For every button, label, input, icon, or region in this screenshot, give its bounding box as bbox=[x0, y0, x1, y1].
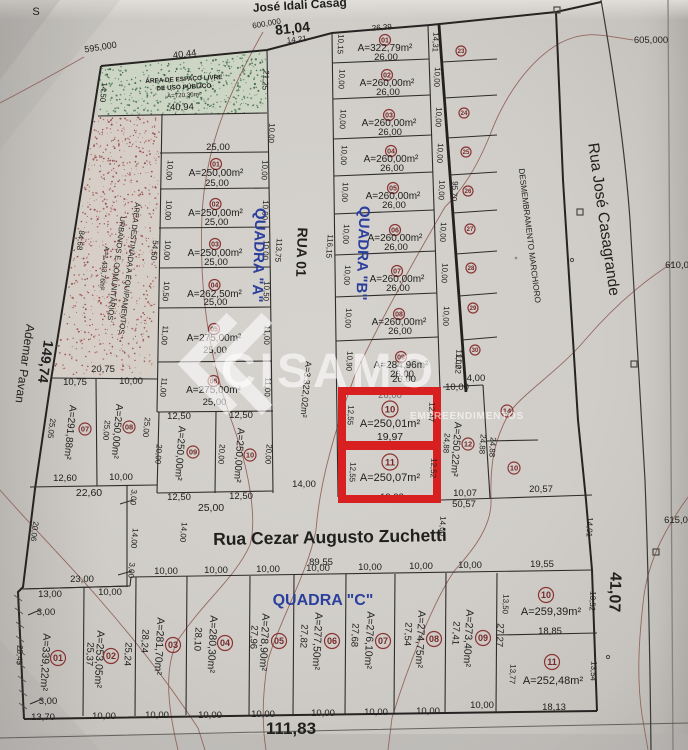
svg-text:27,82: 27,82 bbox=[297, 624, 309, 648]
svg-text:25,00: 25,00 bbox=[206, 142, 230, 153]
svg-text:14,31: 14,31 bbox=[430, 32, 440, 53]
svg-text:10,00: 10,00 bbox=[204, 565, 228, 576]
svg-text:10,00: 10,00 bbox=[92, 711, 116, 722]
svg-text:10,00: 10,00 bbox=[198, 710, 222, 721]
svg-text:12,50: 12,50 bbox=[229, 410, 253, 421]
svg-text:95,70: 95,70 bbox=[449, 181, 459, 202]
svg-text:10,00: 10,00 bbox=[470, 700, 494, 711]
svg-text:26: 26 bbox=[465, 189, 472, 195]
svg-text:CISAMO: CISAMO bbox=[221, 345, 437, 398]
svg-text:3,00: 3,00 bbox=[126, 562, 136, 579]
svg-text:10,00: 10,00 bbox=[342, 265, 352, 286]
svg-text:A=250,07m²: A=250,07m² bbox=[360, 472, 421, 484]
svg-text:41,07: 41,07 bbox=[605, 572, 623, 613]
svg-text:12,52: 12,52 bbox=[428, 458, 438, 479]
svg-text:12,60: 12,60 bbox=[53, 473, 77, 484]
svg-text:4,00: 4,00 bbox=[467, 373, 486, 384]
svg-text:14,00: 14,00 bbox=[437, 516, 447, 537]
svg-text:S: S bbox=[32, 6, 39, 18]
svg-text:10,00: 10,00 bbox=[439, 263, 449, 284]
svg-text:QUADRA "B": QUADRA "B" bbox=[352, 206, 372, 301]
svg-text:10,00: 10,00 bbox=[162, 240, 173, 261]
svg-text:10,15: 10,15 bbox=[335, 34, 345, 55]
svg-text:10,00: 10,00 bbox=[119, 376, 143, 387]
svg-text:11,00: 11,00 bbox=[159, 325, 170, 346]
svg-text:10: 10 bbox=[541, 590, 551, 600]
svg-text:24,88: 24,88 bbox=[487, 437, 497, 458]
svg-text:06: 06 bbox=[327, 636, 337, 646]
svg-text:01: 01 bbox=[53, 653, 63, 663]
svg-text:12,55: 12,55 bbox=[347, 462, 357, 483]
svg-text:10,00: 10,00 bbox=[163, 200, 174, 221]
svg-text:10,00: 10,00 bbox=[259, 160, 269, 181]
svg-text:116,15: 116,15 bbox=[324, 234, 335, 259]
svg-text:20,00: 20,00 bbox=[153, 444, 163, 465]
svg-text:24: 24 bbox=[461, 111, 468, 117]
svg-text:11,02: 11,02 bbox=[453, 354, 463, 375]
svg-text:10,00: 10,00 bbox=[340, 182, 350, 203]
svg-text:10: 10 bbox=[246, 451, 254, 460]
svg-text:10,07: 10,07 bbox=[453, 488, 477, 499]
svg-text:19,55: 19,55 bbox=[530, 559, 554, 570]
svg-text:28,10: 28,10 bbox=[191, 627, 203, 651]
svg-text:29: 29 bbox=[470, 306, 477, 312]
svg-text:10: 10 bbox=[385, 404, 396, 415]
svg-text:10,00: 10,00 bbox=[438, 222, 448, 243]
svg-text:10,00: 10,00 bbox=[432, 67, 442, 88]
svg-text:EMPREENDIMENTOS: EMPREENDIMENTOS bbox=[410, 411, 524, 422]
svg-text:25,00: 25,00 bbox=[205, 217, 229, 228]
svg-text:27: 27 bbox=[467, 227, 474, 233]
svg-text:10,00: 10,00 bbox=[364, 707, 388, 718]
svg-text:09: 09 bbox=[478, 633, 488, 643]
svg-text:20,00: 20,00 bbox=[216, 444, 226, 465]
svg-text:10,00: 10,00 bbox=[145, 710, 169, 721]
svg-text:10,75: 10,75 bbox=[63, 377, 87, 388]
svg-text:10,00: 10,00 bbox=[338, 109, 348, 130]
svg-text:10,00: 10,00 bbox=[436, 180, 446, 201]
svg-text:23: 23 bbox=[458, 49, 465, 55]
svg-text:3,00: 3,00 bbox=[39, 696, 58, 707]
svg-text:26,00: 26,00 bbox=[376, 87, 400, 98]
svg-text:05: 05 bbox=[274, 636, 284, 646]
svg-text:02: 02 bbox=[106, 651, 116, 661]
svg-text:10,00: 10,00 bbox=[154, 566, 178, 577]
svg-text:14,00: 14,00 bbox=[129, 528, 140, 549]
svg-text:25,24: 25,24 bbox=[121, 642, 133, 666]
svg-text:Rua Cezar Augusto Zuchetti: Rua Cezar Augusto Zuchetti bbox=[213, 525, 447, 549]
svg-text:10,00: 10,00 bbox=[339, 145, 349, 166]
svg-text:04: 04 bbox=[220, 638, 230, 648]
svg-text:13,50: 13,50 bbox=[500, 594, 510, 615]
svg-text:10,00: 10,00 bbox=[441, 306, 451, 327]
svg-text:10,00: 10,00 bbox=[358, 562, 382, 573]
svg-text:10,50: 10,50 bbox=[160, 281, 171, 302]
svg-text:24,88: 24,88 bbox=[441, 433, 451, 454]
svg-text:27,41: 27,41 bbox=[449, 621, 461, 645]
svg-text:11,00: 11,00 bbox=[158, 377, 169, 398]
svg-text:14,01: 14,01 bbox=[584, 517, 594, 538]
svg-text:27,54: 27,54 bbox=[401, 622, 413, 646]
svg-text:13,00: 13,00 bbox=[38, 589, 62, 600]
svg-text:14,00: 14,00 bbox=[292, 479, 316, 490]
svg-text:10,00: 10,00 bbox=[266, 123, 276, 144]
svg-text:25,00: 25,00 bbox=[101, 420, 112, 441]
svg-text:10,00: 10,00 bbox=[445, 382, 469, 393]
svg-text:A=252,48m²: A=252,48m² bbox=[523, 675, 584, 687]
svg-text:615,0: 615,0 bbox=[664, 515, 688, 526]
svg-text:10,00: 10,00 bbox=[416, 706, 440, 717]
svg-text:10,00: 10,00 bbox=[109, 472, 133, 483]
svg-text:25,00: 25,00 bbox=[198, 502, 224, 514]
svg-text:40,94: 40,94 bbox=[170, 102, 194, 114]
svg-text:27,96: 27,96 bbox=[247, 625, 259, 649]
svg-text:18,85: 18,85 bbox=[538, 626, 562, 637]
svg-text:605,000: 605,000 bbox=[634, 35, 668, 46]
svg-text:28: 28 bbox=[468, 266, 475, 272]
svg-text:25,00: 25,00 bbox=[204, 297, 228, 308]
svg-text:10,00: 10,00 bbox=[343, 308, 353, 329]
svg-text:50,57: 50,57 bbox=[452, 499, 476, 510]
svg-text:10,00: 10,00 bbox=[256, 564, 280, 575]
svg-text:QUADRA "A": QUADRA "A" bbox=[248, 208, 268, 303]
svg-text:3,00: 3,00 bbox=[128, 489, 138, 506]
svg-text:10,00: 10,00 bbox=[409, 561, 433, 572]
svg-text:3,00: 3,00 bbox=[37, 607, 56, 618]
svg-text:10,00: 10,00 bbox=[98, 587, 122, 598]
svg-text:113,75: 113,75 bbox=[273, 238, 284, 263]
svg-text:26,00: 26,00 bbox=[374, 52, 398, 63]
svg-text:10,00: 10,00 bbox=[311, 708, 335, 719]
svg-text:111,83: 111,83 bbox=[266, 719, 316, 738]
svg-text:10,00: 10,00 bbox=[433, 107, 443, 128]
svg-text:26,00: 26,00 bbox=[386, 283, 410, 294]
svg-text:08: 08 bbox=[125, 423, 133, 432]
svg-text:23,00: 23,00 bbox=[70, 574, 94, 585]
svg-text:27,68: 27,68 bbox=[348, 623, 360, 647]
svg-text:10,00: 10,00 bbox=[341, 224, 351, 245]
svg-text:20,57: 20,57 bbox=[529, 484, 553, 495]
svg-text:24,88: 24,88 bbox=[477, 434, 487, 455]
svg-text:25: 25 bbox=[463, 150, 470, 156]
svg-text:12,50: 12,50 bbox=[167, 492, 191, 503]
svg-text:20,00: 20,00 bbox=[263, 444, 273, 465]
svg-text:10,00: 10,00 bbox=[435, 143, 445, 164]
svg-text:610,0: 610,0 bbox=[665, 260, 688, 271]
svg-text:07: 07 bbox=[81, 425, 89, 434]
svg-text:13,52: 13,52 bbox=[587, 591, 597, 612]
svg-text:07: 07 bbox=[378, 636, 388, 646]
svg-text:A=259,39m²: A=259,39m² bbox=[521, 606, 582, 618]
svg-text:13,77: 13,77 bbox=[507, 664, 517, 685]
svg-text:10: 10 bbox=[510, 464, 518, 473]
svg-text:11: 11 bbox=[547, 657, 557, 667]
svg-text:12: 12 bbox=[464, 440, 472, 449]
svg-text:26,00: 26,00 bbox=[384, 242, 408, 253]
svg-text:25,00: 25,00 bbox=[205, 178, 229, 189]
svg-text:08: 08 bbox=[429, 634, 439, 644]
svg-text:27,27: 27,27 bbox=[493, 623, 505, 647]
svg-text:19,97: 19,97 bbox=[377, 431, 403, 443]
svg-text:25,45: 25,45 bbox=[15, 645, 25, 666]
svg-text:14,00: 14,00 bbox=[178, 522, 189, 543]
svg-text:26,00: 26,00 bbox=[378, 127, 402, 138]
svg-text:12,50: 12,50 bbox=[167, 411, 191, 422]
svg-text:25,37: 25,37 bbox=[83, 642, 95, 666]
svg-text:20,75: 20,75 bbox=[91, 364, 115, 375]
svg-text:26,00: 26,00 bbox=[380, 163, 404, 174]
svg-text:26,00: 26,00 bbox=[388, 326, 412, 337]
svg-text:26,00: 26,00 bbox=[382, 200, 406, 211]
svg-text:10,00: 10,00 bbox=[337, 69, 347, 90]
svg-text:22,60: 22,60 bbox=[76, 487, 102, 499]
svg-text:10,00: 10,00 bbox=[458, 560, 482, 571]
svg-text:03: 03 bbox=[168, 640, 178, 650]
svg-text:13,54: 13,54 bbox=[588, 661, 598, 682]
svg-text:21,25: 21,25 bbox=[260, 70, 270, 91]
svg-text:QUADRA "C": QUADRA "C" bbox=[273, 592, 374, 609]
svg-text:10,00: 10,00 bbox=[164, 160, 175, 181]
svg-text:12,55: 12,55 bbox=[345, 405, 355, 426]
svg-text:11: 11 bbox=[385, 457, 396, 468]
svg-text:09: 09 bbox=[189, 448, 197, 457]
svg-text:12,50: 12,50 bbox=[229, 491, 253, 502]
svg-text:28,24: 28,24 bbox=[138, 629, 150, 653]
svg-text:30: 30 bbox=[472, 348, 479, 354]
svg-text:25,00: 25,00 bbox=[204, 257, 228, 268]
svg-text:18,13: 18,13 bbox=[542, 702, 566, 713]
svg-text:10,00: 10,00 bbox=[306, 563, 330, 574]
svg-text:13,70: 13,70 bbox=[31, 712, 55, 723]
svg-text:RUA 01: RUA 01 bbox=[293, 227, 311, 277]
svg-text:26,39: 26,39 bbox=[372, 22, 393, 32]
